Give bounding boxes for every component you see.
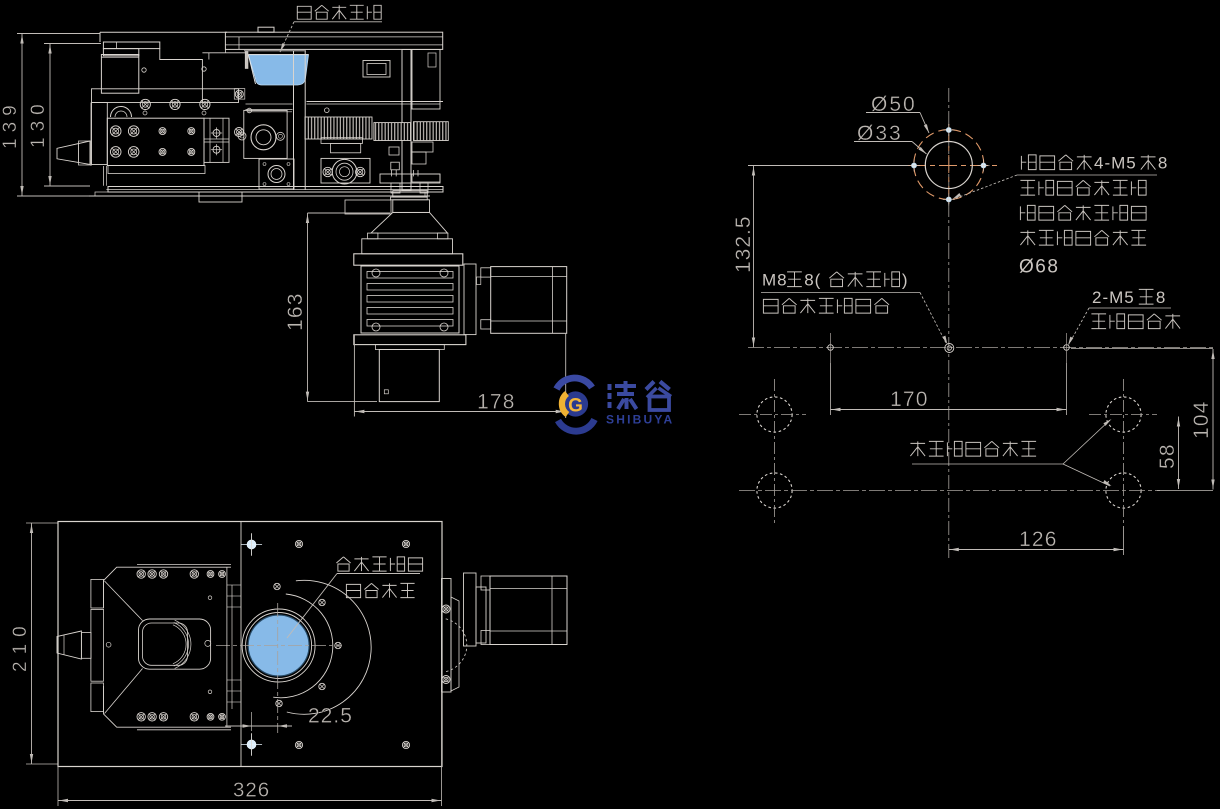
- svg-text:178: 178: [477, 391, 516, 414]
- svg-text:139: 139: [0, 99, 21, 149]
- svg-text:130: 130: [28, 98, 49, 148]
- svg-text:2-M5: 2-M5: [1092, 288, 1135, 307]
- svg-text:170: 170: [890, 388, 929, 411]
- svg-text:326: 326: [233, 779, 270, 802]
- svg-text:126: 126: [1019, 528, 1058, 551]
- svg-text:8: 8: [1156, 288, 1166, 307]
- svg-text:210: 210: [10, 619, 31, 672]
- svg-text:58: 58: [1156, 443, 1179, 469]
- svg-text:Ø68: Ø68: [1019, 257, 1059, 278]
- svg-text:SHIBUYA: SHIBUYA: [606, 413, 674, 427]
- svg-text:M8: M8: [762, 271, 788, 290]
- svg-text:163: 163: [284, 292, 307, 331]
- svg-text:22.5: 22.5: [308, 705, 353, 728]
- svg-text:8(: 8(: [804, 271, 821, 290]
- svg-text:): ): [902, 271, 909, 290]
- svg-text:8: 8: [1158, 154, 1168, 173]
- svg-text:G: G: [568, 396, 583, 417]
- svg-text:104: 104: [1190, 400, 1213, 439]
- svg-text:4-M5: 4-M5: [1094, 154, 1137, 173]
- svg-text:132.5: 132.5: [732, 215, 755, 273]
